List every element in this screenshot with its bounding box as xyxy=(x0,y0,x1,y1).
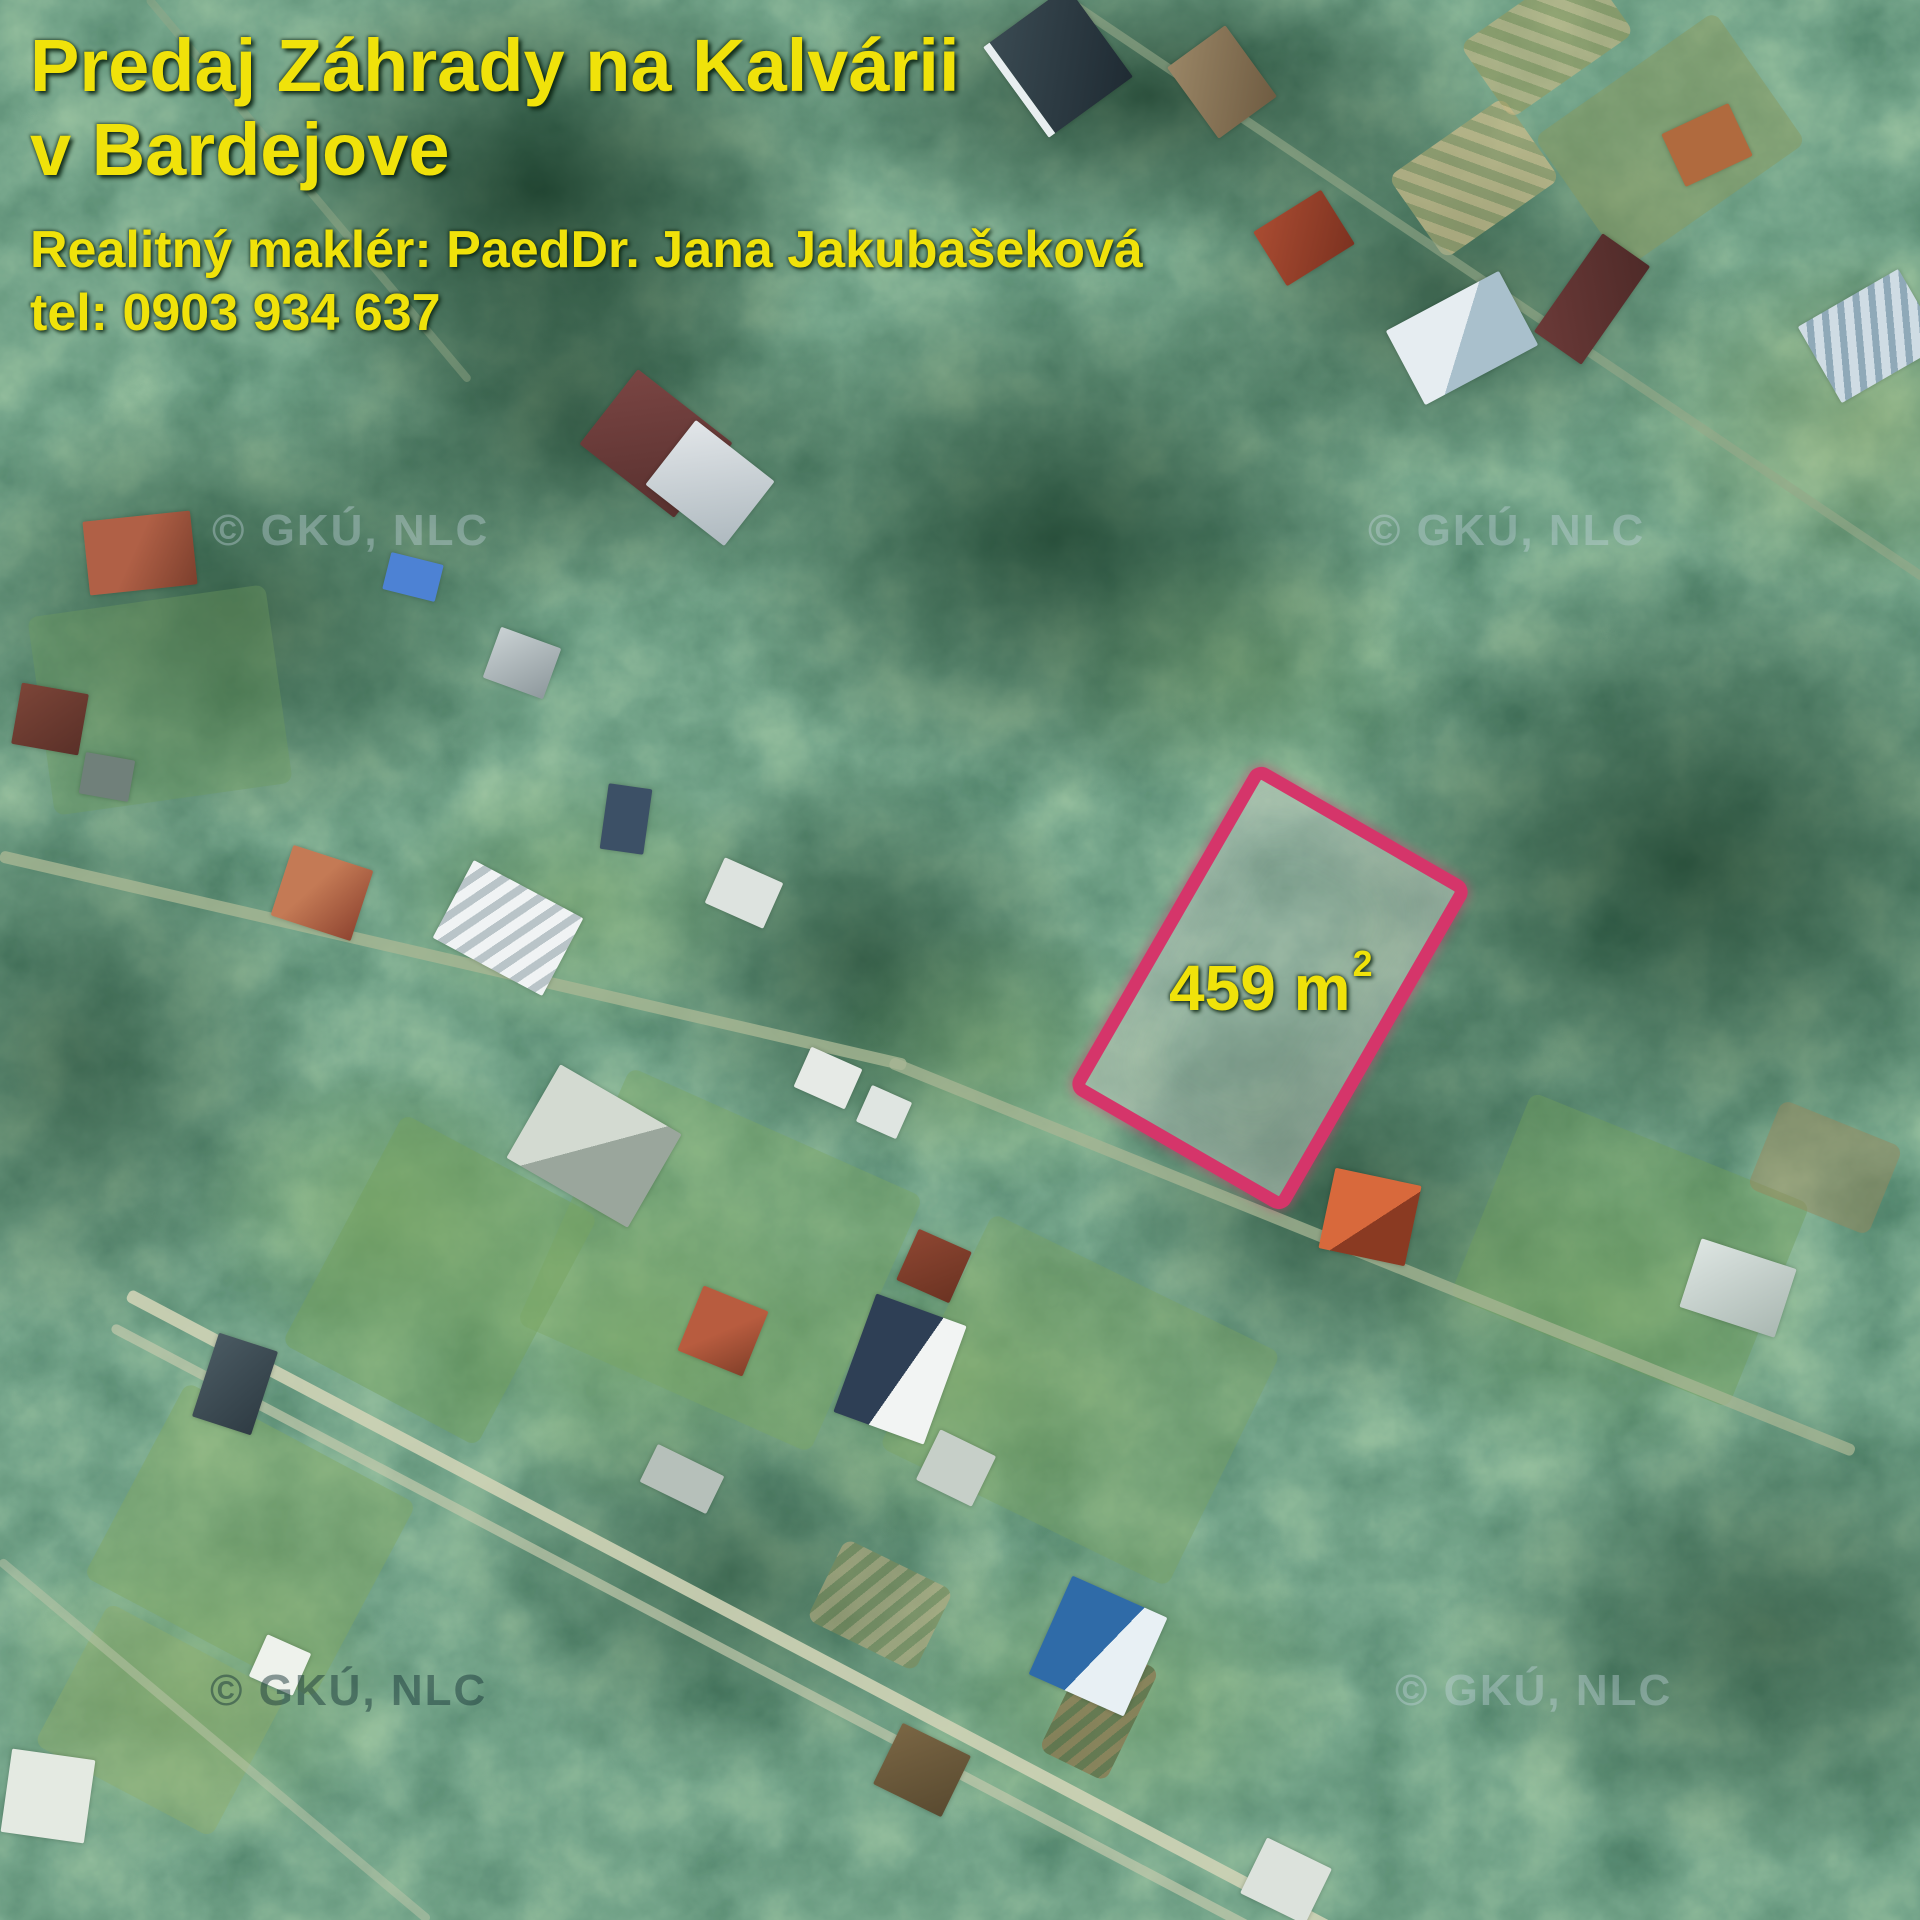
watermark: © GKÚ, NLC xyxy=(1395,1666,1672,1716)
building xyxy=(433,860,584,996)
building xyxy=(1240,1837,1332,1920)
building xyxy=(79,752,136,802)
building xyxy=(1,1749,96,1844)
watermark: © GKÚ, NLC xyxy=(212,506,489,556)
building xyxy=(11,683,89,756)
building xyxy=(382,552,444,602)
watermark: © GKÚ, NLC xyxy=(1368,506,1645,556)
listing-text-block: Predaj Záhrady na Kalvárii v Bardejove R… xyxy=(30,24,1143,346)
building xyxy=(600,783,653,854)
listing-agent: Realitný maklér: PaedDr. Jana Jakubašeko… xyxy=(30,219,1143,282)
building xyxy=(856,1085,912,1139)
building xyxy=(1386,271,1538,405)
building xyxy=(705,857,784,929)
building xyxy=(192,1333,278,1436)
building xyxy=(1318,1168,1421,1267)
plot-area-value: 459 m xyxy=(1169,952,1350,1024)
plot-area-label: 459 m2 xyxy=(1169,951,1370,1025)
building xyxy=(1167,25,1277,139)
watermark: © GKÚ, NLC xyxy=(210,1666,487,1716)
building xyxy=(1798,269,1920,403)
building xyxy=(483,627,562,700)
ground-patch xyxy=(806,1538,953,1671)
plot-area-superscript: 2 xyxy=(1353,944,1373,984)
building xyxy=(82,511,197,596)
listing-title: Predaj Záhrady na Kalvárii v Bardejove xyxy=(30,24,1143,193)
building xyxy=(640,1444,725,1514)
listing-phone: tel: 0903 934 637 xyxy=(30,282,1143,345)
building xyxy=(1253,190,1355,287)
aerial-map: 459 m2 © GKÚ, NLC © GKÚ, NLC © GKÚ, NLC … xyxy=(0,0,1920,1920)
